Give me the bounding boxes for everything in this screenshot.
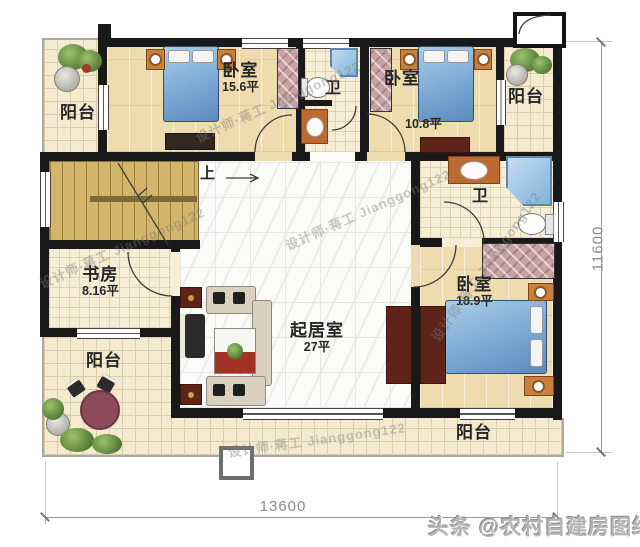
bathroom-right-label: 卫 — [472, 188, 489, 206]
floor-plan: 阳台 卧室 15.6平 卫 卧室 10.8平 阳台 卫 书房 8.16平 起居室… — [0, 0, 640, 547]
balcony-bottom-label: 阳台 — [456, 424, 492, 443]
dimension-right-value: 11600 — [590, 219, 607, 279]
balcony-top-right-label: 阳台 — [508, 88, 544, 107]
bedroom-top-left-label: 卧室 15.6平 — [222, 62, 259, 94]
balcony-top-left-label: 阳台 — [60, 104, 96, 123]
bedroom-top-right-area: 10.8平 — [405, 118, 442, 132]
extension-line — [566, 41, 612, 42]
bedroom-top-right-label: 卧室 — [384, 70, 420, 89]
dimension-bottom-value: 13600 — [248, 498, 318, 515]
living-room-label: 起居室 27平 — [290, 322, 344, 354]
extension-line — [45, 462, 46, 524]
extension-line — [566, 452, 612, 453]
stair-up-label: 上 — [200, 166, 216, 183]
balcony-bottom-left-label: 阳台 — [86, 352, 122, 371]
brand-watermark: 头条 @农村自建房图纸 — [428, 511, 640, 541]
